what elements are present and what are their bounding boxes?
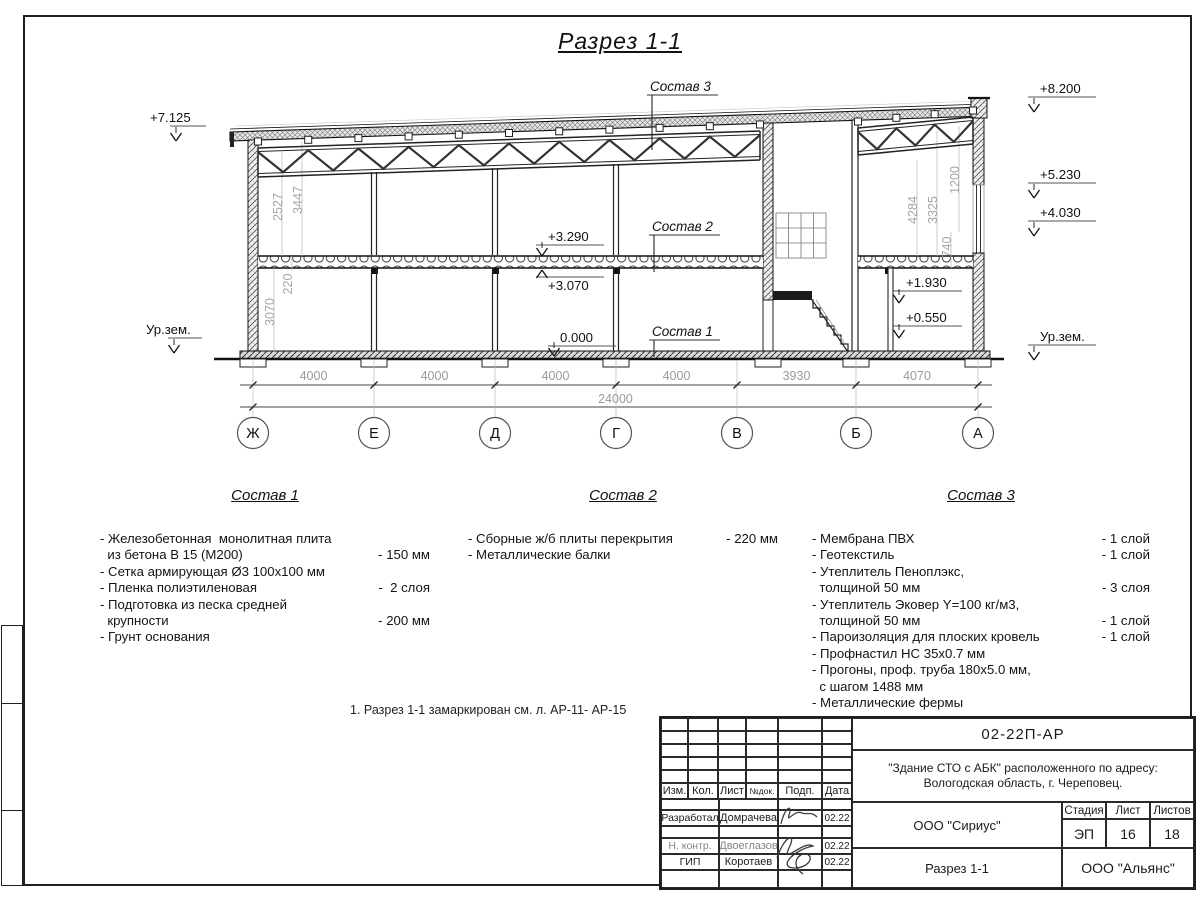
vertical-dimension: 2527 [271, 193, 285, 221]
truss-diagonals [258, 135, 760, 172]
purlin [931, 111, 938, 118]
level-mark-label: +0.550 [906, 310, 947, 325]
project-name: "Здание СТО с АБК" расположенного по адр… [852, 750, 1194, 802]
grid-cell [718, 757, 746, 770]
level-arrow [899, 330, 905, 338]
sheet-header: Лист [1106, 802, 1150, 819]
material-text: - Мембрана ПВХ [812, 531, 914, 547]
purlin [355, 135, 362, 142]
role-cell [661, 870, 719, 888]
grid-cell [718, 718, 746, 731]
purlin [970, 107, 977, 114]
composition-row: - Сборные ж/б плиты перекрытия- 220 мм [468, 531, 778, 547]
material-text: с шагом 1488 мм [812, 679, 923, 695]
grid-header-cell: Кол. [688, 783, 718, 799]
composition-row: - Утеплитель Пеноплэкс, [812, 564, 1150, 580]
grid-cell [746, 718, 778, 731]
level-arrow [899, 295, 905, 303]
grid-cell [822, 757, 852, 770]
material-text: - Металлические фермы [812, 695, 963, 711]
material-text: - Металлические балки [468, 547, 610, 563]
signature-2 [769, 830, 825, 884]
purlin [893, 114, 900, 121]
note: 1. Разрез 1-1 замаркирован см. л. АР-11-… [350, 703, 626, 717]
grid-header-cell: №док. [746, 783, 778, 799]
purlin [656, 124, 663, 131]
sheet-number: 16 [1106, 819, 1150, 848]
material-text: - Пленка полиэтиленовая [100, 580, 257, 596]
grid-cell [746, 757, 778, 770]
drawing-name: Разрез 1-1 [852, 848, 1062, 888]
level-arrow [171, 133, 177, 141]
grid-cell [822, 731, 852, 744]
total-dimension: 24000 [598, 392, 633, 406]
level-arrow [1029, 104, 1035, 112]
vertical-dimension: 3447 [291, 186, 305, 214]
doc-number: 02-22П-АР [852, 718, 1194, 750]
material-value: - 1 слой [1102, 547, 1150, 563]
purlin [506, 130, 513, 137]
callout-label: Состав 2 [652, 219, 713, 234]
material-text: толщиной 50 мм [812, 580, 920, 596]
vertical-dimension: 3070 [263, 298, 277, 326]
axis-label: Е [369, 426, 379, 442]
role-cell: Н. контр. [661, 838, 719, 854]
material-text: крупности [100, 613, 169, 629]
grid-header-cell: Дата [822, 783, 852, 799]
truss-chord [258, 160, 760, 177]
grid-cell [778, 757, 822, 770]
level-mark-label: +1.930 [906, 275, 947, 290]
composition-block: Состав 2- Сборные ж/б плиты перекрытия- … [468, 487, 778, 564]
span-dimension: 4070 [903, 369, 931, 383]
axis-label: В [732, 426, 742, 442]
material-value: - 1 слой [1102, 629, 1150, 645]
composition-row: - Металлические фермы [812, 695, 1150, 711]
material-text: - Железобетонная монолитная плита [100, 531, 332, 547]
purlin [757, 121, 764, 128]
vertical-dimension: 220 [281, 274, 295, 295]
vertical-dimension: 3325 [926, 196, 940, 224]
level-arrow [1034, 104, 1040, 112]
material-text: - Профнастил НС 35x0.7 мм [812, 646, 985, 662]
role-cell: ГИП [661, 854, 719, 870]
material-text: - Прогоны, проф. труба 180x5.0 мм, [812, 662, 1031, 678]
stage-value: ЭП [1062, 819, 1106, 848]
composition-block: Состав 3- Мембрана ПВХ- 1 слой- Геотекст… [812, 487, 1150, 711]
composition-block: Состав 1- Железобетонная монолитная плит… [100, 487, 430, 646]
level-mark-label: Ур.зем. [1040, 329, 1085, 344]
grid-cell [718, 744, 746, 757]
level-mark-label: +7.125 [150, 110, 191, 125]
material-text: - Грунт основания [100, 629, 210, 645]
purlin [706, 123, 713, 130]
date-cell [822, 870, 852, 888]
level-mark-label: +4.030 [1040, 205, 1081, 220]
signature-1 [775, 802, 821, 830]
name-cell [719, 799, 778, 810]
grid-header-cell: Подп. [778, 783, 822, 799]
composition-row: - Пленка полиэтиленовая- 2 слоя [100, 580, 430, 596]
org-designer: ООО "Сириус" [852, 802, 1062, 848]
grid-cell [778, 731, 822, 744]
grid-cell [688, 731, 718, 744]
grid-cell [822, 770, 852, 783]
axis-label: Д [490, 426, 500, 442]
composition-row: - Подготовка из песка средней [100, 597, 430, 613]
purlin [305, 136, 312, 143]
composition-row: - Грунт основания [100, 629, 430, 645]
role-cell [661, 799, 719, 810]
material-value: - 200 мм [378, 613, 430, 629]
callout-label: Состав 3 [650, 79, 711, 94]
material-value: - 1 слой [1102, 531, 1150, 547]
vertical-dimension: 4284 [906, 196, 920, 224]
level-arrow [537, 248, 543, 256]
axis-label: Ж [246, 426, 260, 442]
span-dimension: 4000 [421, 369, 449, 383]
grid-cell [661, 718, 688, 731]
material-value: - 220 мм [726, 531, 778, 547]
grid-cell [778, 744, 822, 757]
vertical-dimension: 1200 [948, 166, 962, 194]
stage-header: Стадия [1062, 802, 1106, 819]
span-dimension: 3930 [783, 369, 811, 383]
date-cell: 02.22 [822, 838, 852, 854]
composition-row: - Прогоны, проф. труба 180x5.0 мм, [812, 662, 1150, 678]
name-cell: Домрачева [719, 810, 778, 826]
composition-row: - Профнастил НС 35x0.7 мм [812, 646, 1150, 662]
title-block: Изм.Кол.Лист№док.Подп.ДатаРазработалДомр… [659, 716, 1196, 890]
span-dimension: 4000 [542, 369, 570, 383]
composition-row: - Утеплитель Эковер Y=100 кг/м3, [812, 597, 1150, 613]
axis-label: Г [612, 426, 620, 442]
grid-cell [746, 744, 778, 757]
role-cell [661, 826, 719, 838]
level-arrow [1034, 228, 1040, 236]
grid-cell [746, 731, 778, 744]
material-text: - Геотекстиль [812, 547, 894, 563]
grid-cell [661, 731, 688, 744]
sheets-total: 18 [1150, 819, 1194, 848]
grid-cell [746, 770, 778, 783]
purlin [255, 138, 262, 145]
purlin [855, 118, 862, 125]
grid-cell [718, 770, 746, 783]
ground [214, 351, 1004, 367]
org-contractor: ООО "Альянс" [1062, 848, 1194, 888]
material-text: - Сетка армирующая Ø3 100x100 мм [100, 564, 325, 580]
level-arrow [542, 248, 548, 256]
level-mark-label: +3.070 [548, 278, 589, 293]
callout-label: Состав 1 [652, 324, 713, 339]
grid-cell [822, 744, 852, 757]
level-mark-label: +3.290 [548, 229, 589, 244]
purlin [455, 131, 462, 138]
composition-row: - Геотекстиль- 1 слой [812, 547, 1150, 563]
vertical-dimension: 740 [940, 237, 954, 258]
material-text: толщиной 50 мм [812, 613, 920, 629]
composition-row: - Пароизоляция для плоских кровель- 1 сл… [812, 629, 1150, 645]
composition-title: Состав 1 [100, 487, 430, 504]
date-cell [822, 799, 852, 810]
material-text: - Утеплитель Эковер Y=100 кг/м3, [812, 597, 1019, 613]
grid-cell [661, 770, 688, 783]
composition-title: Состав 2 [468, 487, 778, 504]
grid-header-cell: Изм. [661, 783, 688, 799]
level-mark-label: 0.000 [560, 330, 593, 345]
level-arrow [894, 330, 900, 338]
composition-row: из бетона В 15 (М200)- 150 мм [100, 547, 430, 563]
material-value: - 2 слоя [378, 580, 430, 596]
right-room [888, 268, 893, 351]
grid-cell [688, 718, 718, 731]
sheets-header: Листов [1150, 802, 1194, 819]
composition-row: - Железобетонная монолитная плита [100, 531, 430, 547]
level-mark-label: Ур.зем. [146, 322, 191, 337]
grid-cell [688, 770, 718, 783]
floor-slab [258, 256, 973, 274]
date-cell [822, 826, 852, 838]
composition-title: Состав 3 [812, 487, 1150, 504]
material-value: - 150 мм [378, 547, 430, 563]
composition-row: толщиной 50 мм- 3 слоя [812, 580, 1150, 596]
material-value: - 1 слой [1102, 613, 1150, 629]
purlin [606, 126, 613, 133]
material-text: - Сборные ж/б плиты перекрытия [468, 531, 673, 547]
composition-row: - Мембрана ПВХ- 1 слой [812, 531, 1150, 547]
level-arrow [169, 345, 175, 353]
composition-row: толщиной 50 мм- 1 слой [812, 613, 1150, 629]
role-cell: Разработал [661, 810, 719, 826]
composition-row: - Сетка армирующая Ø3 100x100 мм [100, 564, 430, 580]
level-arrow [174, 345, 180, 353]
material-text: - Пароизоляция для плоских кровель [812, 629, 1040, 645]
material-text: - Подготовка из песка средней [100, 597, 287, 613]
material-text: - Утеплитель Пеноплэкс, [812, 564, 964, 580]
composition-row: - Металлические балки [468, 547, 778, 563]
level-arrow [1029, 352, 1035, 360]
level-mark-label: +8.200 [1040, 81, 1081, 96]
purlin [556, 128, 563, 135]
grid-header-cell: Лист [718, 783, 746, 799]
level-arrow [1034, 352, 1040, 360]
material-value: - 3 слоя [1102, 580, 1150, 596]
grid-cell [778, 770, 822, 783]
grid-cell [718, 731, 746, 744]
grid-cell [822, 718, 852, 731]
axis-label: А [973, 426, 983, 442]
grid-cell [688, 744, 718, 757]
level-arrow [894, 295, 900, 303]
level-arrow [1029, 228, 1035, 236]
span-dimension: 4000 [300, 369, 328, 383]
axis-label: Б [851, 426, 861, 442]
grid-cell [778, 718, 822, 731]
level-mark-label: +5.230 [1040, 167, 1081, 182]
purlin [405, 133, 412, 140]
span-dimension: 4000 [663, 369, 691, 383]
material-text: из бетона В 15 (М200) [100, 547, 243, 563]
composition-row: крупности- 200 мм [100, 613, 430, 629]
date-cell: 02.22 [822, 810, 852, 826]
level-arrow [176, 133, 182, 141]
grid-cell [661, 744, 688, 757]
grid-cell [688, 757, 718, 770]
date-cell: 02.22 [822, 854, 852, 870]
grid-cell [661, 757, 688, 770]
level-arrow [1034, 190, 1040, 198]
composition-row: с шагом 1488 мм [812, 679, 1150, 695]
staircase [773, 213, 848, 352]
level-arrow [1029, 190, 1035, 198]
